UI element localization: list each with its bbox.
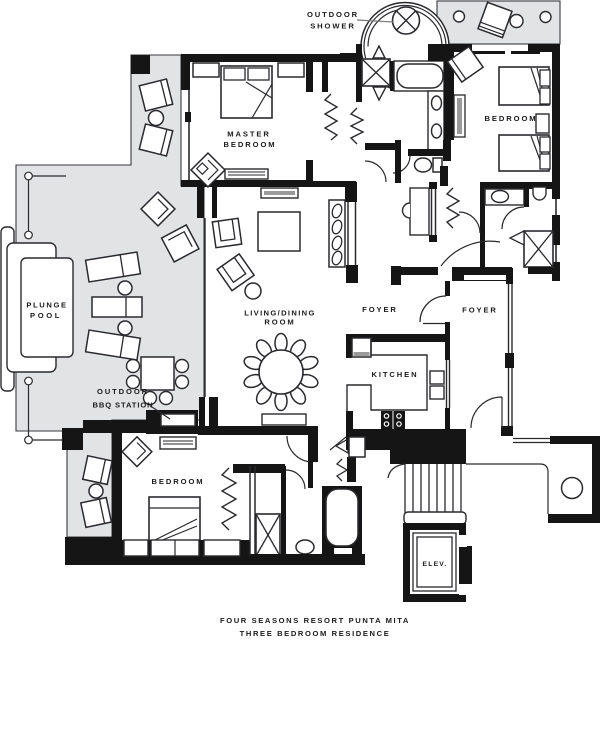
svg-text:FOUR SEASONS RESORT PUNTA MITA: FOUR SEASONS RESORT PUNTA MITA bbox=[220, 616, 410, 625]
svg-text:FOYER: FOYER bbox=[462, 306, 498, 315]
svg-text:THREE BEDROOM RESIDENCE: THREE BEDROOM RESIDENCE bbox=[240, 629, 391, 638]
svg-text:OUTDOOR: OUTDOOR bbox=[307, 10, 359, 19]
svg-text:BBQ STATION: BBQ STATION bbox=[92, 401, 153, 410]
svg-text:ROOM: ROOM bbox=[264, 318, 295, 327]
svg-text:BEDROOM: BEDROOM bbox=[224, 140, 277, 149]
svg-text:MASTER: MASTER bbox=[227, 130, 270, 139]
svg-text:PLUNGE: PLUNGE bbox=[26, 301, 67, 310]
svg-text:POOL: POOL bbox=[30, 311, 62, 320]
svg-text:SHOWER: SHOWER bbox=[310, 22, 356, 31]
svg-text:BEDROOM: BEDROOM bbox=[152, 477, 205, 486]
svg-text:FOYER: FOYER bbox=[362, 305, 398, 314]
svg-text:BEDROOM: BEDROOM bbox=[485, 114, 538, 123]
svg-text:KITCHEN: KITCHEN bbox=[371, 370, 418, 379]
svg-text:OUTDOOR: OUTDOOR bbox=[97, 387, 149, 396]
svg-text:ELEV.: ELEV. bbox=[422, 561, 447, 568]
svg-text:LIVING/DINING: LIVING/DINING bbox=[244, 309, 316, 318]
